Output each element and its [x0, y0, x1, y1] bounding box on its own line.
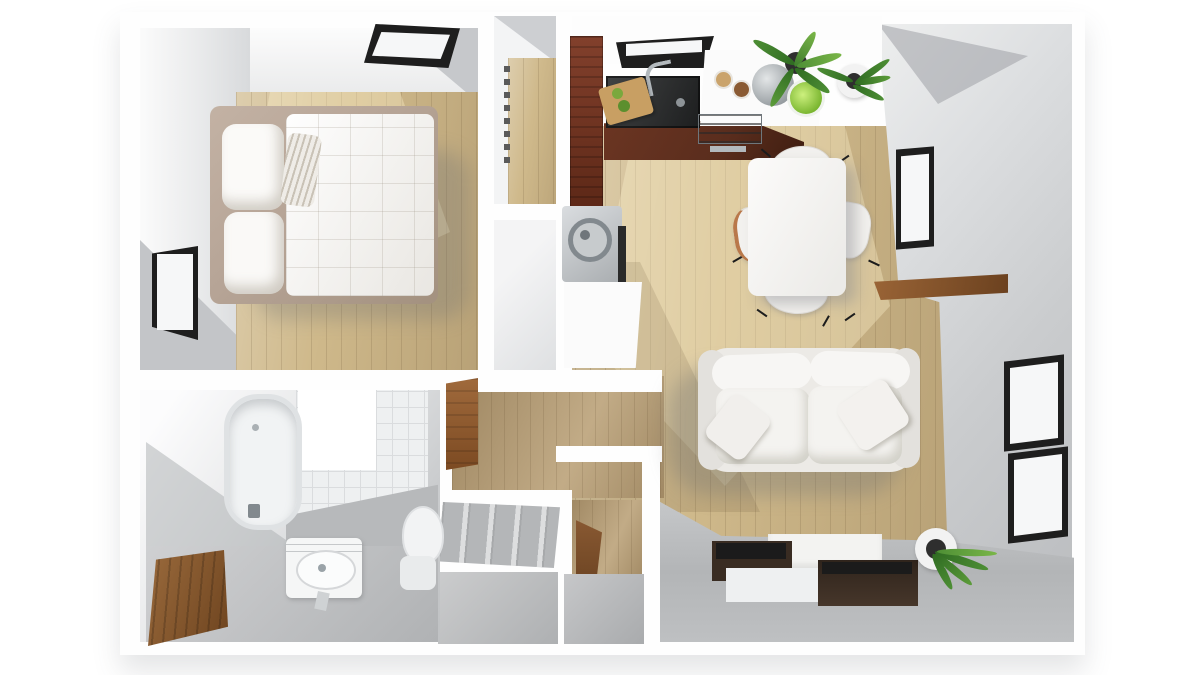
bathtub: [224, 394, 302, 530]
vanity-faucet: [318, 564, 326, 572]
laundry-counter: [564, 282, 642, 368]
partition-wall: [128, 370, 662, 392]
dining-window-glass: [901, 154, 929, 242]
jar: [734, 82, 749, 97]
living-window-glass: [1010, 362, 1058, 444]
stove-handle: [710, 146, 746, 152]
entry-closet-gray-floor: [564, 574, 644, 644]
entry-step: [438, 502, 560, 568]
sofa-back-cushion: [809, 350, 910, 389]
entry-wall-cabinet: [446, 378, 478, 470]
fruit: [612, 88, 623, 99]
bedroom-side-window-glass: [157, 254, 193, 330]
partition-wall: [438, 490, 560, 504]
fruit: [618, 100, 630, 112]
closet-rail: [504, 66, 510, 170]
bathtub-drain: [252, 424, 259, 431]
vanity-basin: [296, 550, 356, 590]
sink-drain: [676, 98, 685, 107]
toilet-tank: [400, 556, 436, 590]
bathroom-bright-wall: [298, 390, 376, 470]
hallway-wood-floor: [452, 376, 664, 498]
dining-table: [748, 158, 846, 296]
living-floor-plant: [905, 520, 1015, 610]
tv-console-white-drawer: [726, 568, 824, 602]
tv-console-dark-top: [822, 562, 912, 574]
partition-wall: [478, 16, 494, 378]
washer-door-center: [580, 230, 590, 240]
tv-console-glass-top: [716, 543, 786, 559]
partition-wall: [642, 450, 660, 644]
washer-door: [568, 218, 612, 262]
stove-grill: [698, 114, 762, 144]
floor-plan-render: [120, 12, 1085, 655]
skylight-glass: [372, 32, 450, 59]
bathtub-faucet: [248, 504, 260, 518]
living-window-glass: [1014, 454, 1062, 536]
jar: [716, 72, 731, 87]
entry-gray-floor: [438, 572, 558, 644]
corner-snake-plant: [815, 36, 905, 120]
bed-pillow: [222, 124, 284, 210]
bed-pillow: [224, 212, 284, 294]
washer-side-panel: [618, 226, 626, 286]
sofa-back-cushion: [711, 352, 812, 391]
kitchen-tall-cabinet: [570, 36, 603, 208]
